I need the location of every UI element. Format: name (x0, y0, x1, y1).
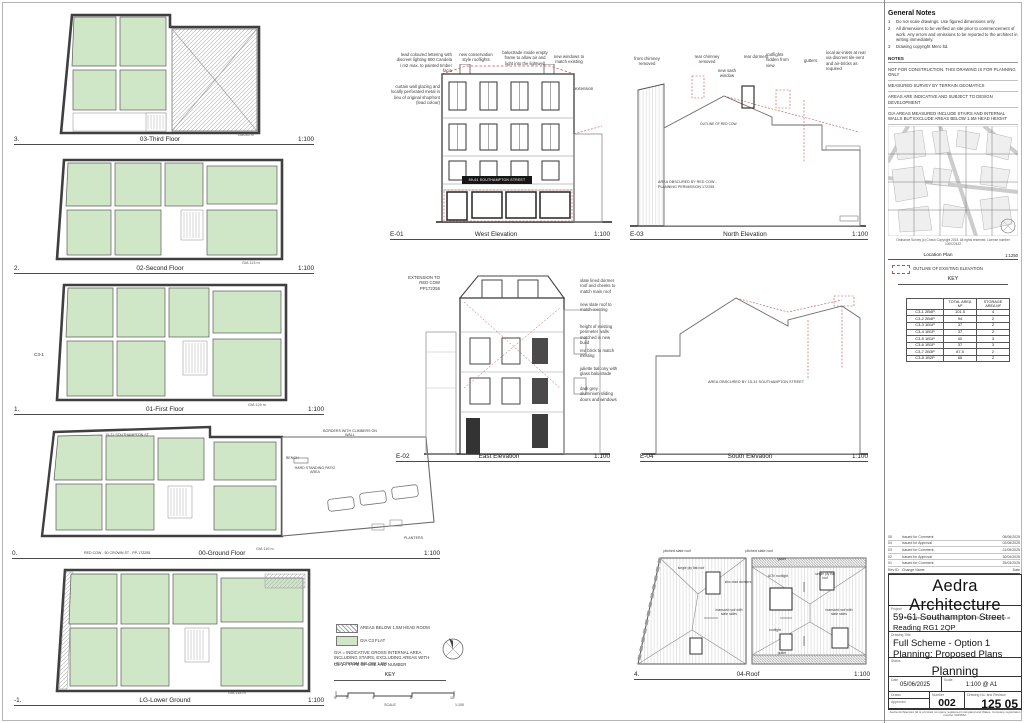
unit-cell: C3-5 1B1P (907, 336, 944, 343)
rev-date-header: Date (990, 568, 1020, 572)
storage-cell: 2 (977, 322, 1010, 329)
note-line: NOT FOR CONSTRUCTION. THIS DRAWING IS FO… (888, 64, 1018, 81)
south-obscured-label: AREA OBSCURED BY 15-31 SOUTHAMPTON STREE… (706, 380, 806, 385)
drawing-sheet: GIA 85 m 3. 03-Third Floor 1:100 GIA 113… (0, 0, 1024, 723)
table-row: C3-6 1B1P373 (907, 342, 1010, 349)
revision-row: 01Issued for Comment25/03/2025 (888, 560, 1020, 567)
north-ann-rear-chimney: rear chimney removed (688, 54, 726, 65)
general-note-text: All dimensions to be verified on site pr… (896, 26, 1018, 43)
notes-heading: NOTES (888, 56, 1018, 63)
key-c3-note: C3-1 = TYPE OF USE AND NUMBER (334, 662, 446, 667)
lower-ground-name: LG-Lower Ground (50, 697, 280, 704)
east-elevation-drawing (420, 268, 620, 460)
unit-cell: C3-3 1B1P (907, 322, 944, 329)
note-line: AREAS ARE INDICATIVE AND SUBJECT TO DESI… (888, 92, 1018, 109)
revision-row: 05Issued for Comment05/06/2025 (888, 534, 1020, 541)
title-block: Aedra Architecture 11 South Street | Cam… (888, 574, 1022, 710)
total-area-header: TOTAL AREA M² (944, 299, 977, 310)
west-elevation-shop-sign: 59-61 SOUTHAMPTON STREET (462, 176, 532, 184)
north-elevation-name: North Elevation (666, 231, 824, 238)
panel-key-title: KEY (898, 276, 1008, 285)
rev-id-header: Rev ID (888, 568, 902, 572)
table-row: C3-7 2B3P87.52 (907, 349, 1010, 356)
roof-ann-rooflight: rooflight (762, 628, 788, 632)
general-note-text: Drawing copyright Mero ltd. (896, 44, 948, 50)
west-elevation-name: West Elevation (426, 231, 566, 238)
lower-ground-scale: 1:100 (280, 697, 324, 704)
title-block-project-section: Project 59-61 Southampton Street Reading… (889, 606, 1021, 632)
roof-ann-flat-right: single ply flat roof (812, 572, 838, 581)
location-plan-map (888, 126, 1018, 236)
unit-cell: C3-7 2B3P (907, 349, 944, 356)
existing-elevation-outline-label: OUTLINE OF EXISTING ELEVATION (913, 266, 983, 271)
storage-cell: 2 (977, 316, 1010, 323)
south-elevation-name: South Elevation (676, 453, 824, 460)
unit-header (907, 299, 944, 310)
north-elevation-drawing (626, 70, 870, 232)
lower-ground-number: -1. (14, 697, 50, 704)
title-block-date-scale-row: Date 05/06/2025 Scale 1:100 @ A1 (889, 677, 1021, 692)
rev-id: 04 (888, 541, 902, 545)
scale-tick-6: 6 (410, 696, 412, 700)
ground-floor-name: 00-Ground Floor (48, 550, 396, 557)
revision-row: 02Issued for Approval30/04/2025 (888, 554, 1020, 561)
storage-area-header: STORAGE AREA M² (977, 299, 1010, 310)
general-note-item: 3 Drawing copyright Mero ltd. (888, 44, 1018, 50)
scale-tick-10: 10 (450, 696, 454, 700)
total-cell: 94 (944, 316, 977, 323)
general-note-item: 1 Do not scale drawings. Use figured dim… (888, 19, 1018, 25)
unit-cell: C3-4 1B1P (907, 329, 944, 336)
drawing-no-cell: Drawing No. and Revision 125 05 (965, 692, 1021, 708)
rev-name: Issued for Comment (902, 561, 990, 565)
rev-id: 05 (888, 535, 902, 539)
east-elevation-id: E-02 (396, 453, 432, 460)
rev-date: 25/03/2025 (990, 561, 1020, 565)
west-elevation-drawing (432, 64, 617, 230)
roof-plan-scale: 1:100 (826, 671, 870, 678)
third-floor-name: 03-Third Floor (50, 136, 270, 143)
north-arrow-icon (440, 636, 466, 662)
general-note-item: 2 All dimensions to be verified on site … (888, 26, 1018, 43)
storage-cell: 3 (977, 336, 1010, 343)
rev-name: Issued for Approval (902, 555, 990, 559)
north-ann-gutters: gutters (804, 58, 824, 63)
second-floor-number: 2. (14, 265, 50, 272)
title-block-practice-section: Aedra Architecture 11 South Street | Cam… (889, 577, 1021, 606)
table-row: C3-5 1B1P403 (907, 336, 1010, 343)
existing-elevation-outline-swatch (892, 265, 910, 274)
roof-ann-dormers: zinc clad dormers (724, 580, 752, 584)
north-elevation-id: E-03 (630, 231, 666, 238)
drawing-title-line1: Full Scheme - Option 1 (889, 637, 1021, 649)
location-plan-label-row: Location Plan 1:1250 (888, 248, 1018, 260)
revision-table: 05Issued for Comment05/06/2025 04Issued … (888, 534, 1020, 574)
key-green-swatch (336, 636, 358, 646)
rev-date: 21/05/2025 (990, 548, 1020, 552)
north-ann-front-chimney: front chimney removed (630, 56, 664, 67)
total-cell: 66 (944, 355, 977, 362)
drawn-label: Drawn (889, 692, 929, 699)
unit-cell: C3-1 2B4P (907, 309, 944, 316)
storage-cell: 2 (977, 355, 1010, 362)
rev-id: 03 (888, 548, 902, 552)
total-cell: 40 (944, 336, 977, 343)
roof-plan-label-row: 4. 04-Roof 1:100 (634, 667, 870, 680)
date-cell: Date 05/06/2025 (889, 677, 942, 691)
table-row: C3-2 2B4P942 (907, 316, 1010, 323)
unit-cell: C3-2 2B4P (907, 316, 944, 323)
roof-ann-pitched-right: pitched slate roof (738, 549, 780, 553)
drawing-no-value: 125 05 (965, 697, 1021, 711)
second-floor-label-row: 2. 02-Second Floor 1:100 (14, 261, 314, 274)
rev-date: 02/06/2025 (990, 541, 1020, 545)
south-elevation-drawing (638, 268, 872, 460)
date-value: 05/06/2025 (889, 682, 941, 688)
roof-ann-aov: AOV rooflight (762, 574, 794, 578)
total-cell: 37 (944, 322, 977, 329)
key-green-label: GIA C3 FLAT (360, 638, 450, 643)
map-copyright: Ordnance Survey (c) Crown Copyright 2015… (888, 238, 1018, 246)
roof-plan-number: 4. (634, 671, 670, 678)
scale-tick-3: 3 (372, 696, 374, 700)
panel-divider-line (884, 0, 885, 723)
first-floor-label-row: 1. 01-First Floor 1:100 (14, 402, 324, 415)
revision-row: 03Issued for Comment21/05/2025 (888, 547, 1020, 554)
ground-floor-number: 0. (12, 550, 48, 557)
key-title: KEY (334, 672, 446, 681)
north-redcow-outline-label: OUTLINE OF RED COW (700, 122, 744, 126)
east-elevation-name: East Elevation (432, 453, 566, 460)
first-floor-number: 1. (14, 406, 50, 413)
third-floor-number: 3. (14, 136, 50, 143)
storage-cell: 3 (977, 342, 1010, 349)
lower-ground-label-row: -1. LG-Lower Ground 1:100 (14, 693, 324, 706)
rev-date: 05/06/2025 (990, 535, 1020, 539)
north-ann-air-inlets: local air-inlets at rear via discreet ti… (826, 50, 868, 71)
project-address: 59-61 Southampton Street (889, 611, 1021, 623)
ground-floor-plan-drawing (32, 424, 442, 548)
rev-name: Issued for Comment (902, 535, 990, 539)
rev-date: 30/04/2025 (990, 555, 1020, 559)
north-elevation-scale: 1:100 (824, 231, 868, 238)
general-note-num: 1 (888, 19, 896, 25)
unit-cell: C3-8 1B2P (907, 355, 944, 362)
north-obscured-label: AREA OBSCURED BY RED COW - PLANNING PERM… (658, 180, 718, 189)
roof-plan-name: 04-Roof (670, 671, 826, 678)
second-floor-name: 02-Second Floor (50, 265, 270, 272)
scale-tick-0: 0 (334, 696, 336, 700)
ground-patio-annotation: HARD STANDING PATIO AREA (294, 466, 336, 475)
roof-ann-gutter-top: gutter (772, 557, 792, 561)
third-floor-label-row: 3. 03-Third Floor 1:100 (14, 132, 314, 145)
table-row: C3-1 2B4P101.54 (907, 309, 1010, 316)
south-elevation-label-row: E-04 South Elevation 1:100 (640, 449, 868, 462)
east-elevation-scale: 1:100 (566, 453, 610, 460)
number-cell: Number 002 (930, 692, 965, 708)
table-header-row: TOTAL AREA M² STORAGE AREA M² (907, 299, 1010, 310)
total-cell: 87.5 (944, 349, 977, 356)
general-note-text: Do not scale drawings. Use figured dimen… (896, 19, 996, 25)
storage-cell: 2 (977, 349, 1010, 356)
rev-name: Issued for Approval (902, 541, 990, 545)
roof-ann-mansard-right: mansard roof with slate sides (824, 608, 854, 617)
title-block-number-row: Drawn Approved Number 002 Drawing No. an… (889, 692, 1021, 708)
storage-cell: 2 (977, 329, 1010, 336)
ground-planters-annotation: PLANTERS (404, 536, 423, 540)
second-floor-plan-drawing (55, 158, 285, 262)
general-notes-title: General Notes (888, 10, 1018, 17)
third-floor-scale: 1:100 (270, 136, 314, 143)
total-cell: 37 (944, 342, 977, 349)
scale-tick-1: 1 (346, 696, 348, 700)
revision-row: 04Issued for Approval02/06/2025 (888, 541, 1020, 548)
total-cell: 101.5 (944, 309, 977, 316)
second-floor-scale: 1:100 (270, 265, 314, 272)
scale-bar-ratio: 1:100 (430, 703, 464, 707)
third-floor-plan-drawing (58, 12, 263, 136)
north-elevation-label-row: E-03 North Elevation 1:100 (630, 227, 868, 240)
scale-value: 1:100 @ A1 (942, 682, 1021, 688)
general-note-num: 3 (888, 44, 896, 50)
note-line: MEASURED SURVEY BY TERRAIN GEOMATICS (888, 81, 1018, 92)
first-floor-plan-drawing (55, 283, 290, 403)
roof-ann-pitched-left: pitched slate roof (656, 549, 698, 553)
number-value: 002 (930, 697, 964, 709)
first-floor-name: 01-First Floor (50, 406, 280, 413)
east-elevation-label-row: E-02 East Elevation 1:100 (396, 449, 610, 462)
roof-ann-flat-left: single ply flat roof (676, 566, 706, 570)
scale-bar-drawing (334, 689, 464, 699)
ground-street-annotation: 15-31 SOUTHAMPTON ST (95, 433, 159, 437)
scale-bar: 0 1 3 6 10 (334, 686, 464, 704)
location-plan-label: Location Plan (888, 253, 988, 258)
company-registration-note: Aedra Architecture ltd is a limited comp… (889, 708, 1021, 718)
west-elevation-scale: 1:100 (566, 231, 610, 238)
west-ann-rooflights: new conservation style rooflights (456, 52, 496, 63)
notes-block: NOTES NOT FOR CONSTRUCTION. THIS DRAWING… (888, 56, 1018, 125)
ground-floor-label-row: 0. 00-Ground Floor 1:100 (12, 546, 440, 559)
south-elevation-id: E-04 (640, 453, 676, 460)
title-block-drawing-title-section: Drawing Title Full Scheme - Option 1 Pla… (889, 632, 1021, 658)
storage-cell: 4 (977, 309, 1010, 316)
approved-label: Approved (889, 699, 929, 704)
first-floor-scale: 1:100 (280, 406, 324, 413)
north-ann-rooflights: rooflights hidden from view (766, 52, 794, 68)
unit-cell: C3-6 1B1P (907, 342, 944, 349)
table-row: C3-3 1B1P372 (907, 322, 1010, 329)
west-elevation-id: E-01 (390, 231, 426, 238)
west-elevation-label-row: E-01 West Elevation 1:100 (390, 227, 610, 240)
scale-cell: Scale 1:100 @ A1 (942, 677, 1021, 691)
rev-id: 01 (888, 561, 902, 565)
roof-ann-mansard-left: mansard roof with slate sides (714, 608, 744, 617)
rev-name-header: Change Name (902, 568, 990, 572)
key-hatch-label: AREAS BELOW 1.5M HEAD ROOM (360, 625, 450, 630)
title-block-status-section: Status Planning (889, 658, 1021, 677)
location-plan-scale: 1:1250 (988, 253, 1018, 258)
total-cell: 37 (944, 329, 977, 336)
table-row: C3-4 1B1P372 (907, 329, 1010, 336)
first-floor-unit-tag: C3-1 (34, 352, 44, 357)
table-row: C3-8 1B2P662 (907, 355, 1010, 362)
south-elevation-scale: 1:100 (824, 453, 868, 460)
roof-ann-gutter-bottom: gutter (772, 651, 792, 655)
note-line: GIA AREAS MEASURED INCLUDE STAIRS AND IN… (888, 108, 1018, 125)
revision-header-row: Rev IDChange NameDate (888, 567, 1020, 574)
lower-ground-plan-drawing (55, 568, 313, 694)
key-hatch-swatch (336, 624, 358, 633)
general-note-num: 2 (888, 26, 896, 43)
ground-borders-annotation: BORDERS WITH CLIMBERS ON WALL (322, 429, 378, 438)
ground-floor-scale: 1:100 (396, 550, 440, 557)
drawn-approved-cell: Drawn Approved (889, 692, 930, 708)
area-schedule-table: TOTAL AREA M² STORAGE AREA M² C3-1 2B4P1… (906, 298, 1010, 362)
ground-bench-annotation: BENCH (286, 456, 299, 460)
general-notes-block: General Notes 1 Do not scale drawings. U… (888, 10, 1018, 51)
rev-id: 02 (888, 555, 902, 559)
rev-name: Issued for Comment (902, 548, 990, 552)
